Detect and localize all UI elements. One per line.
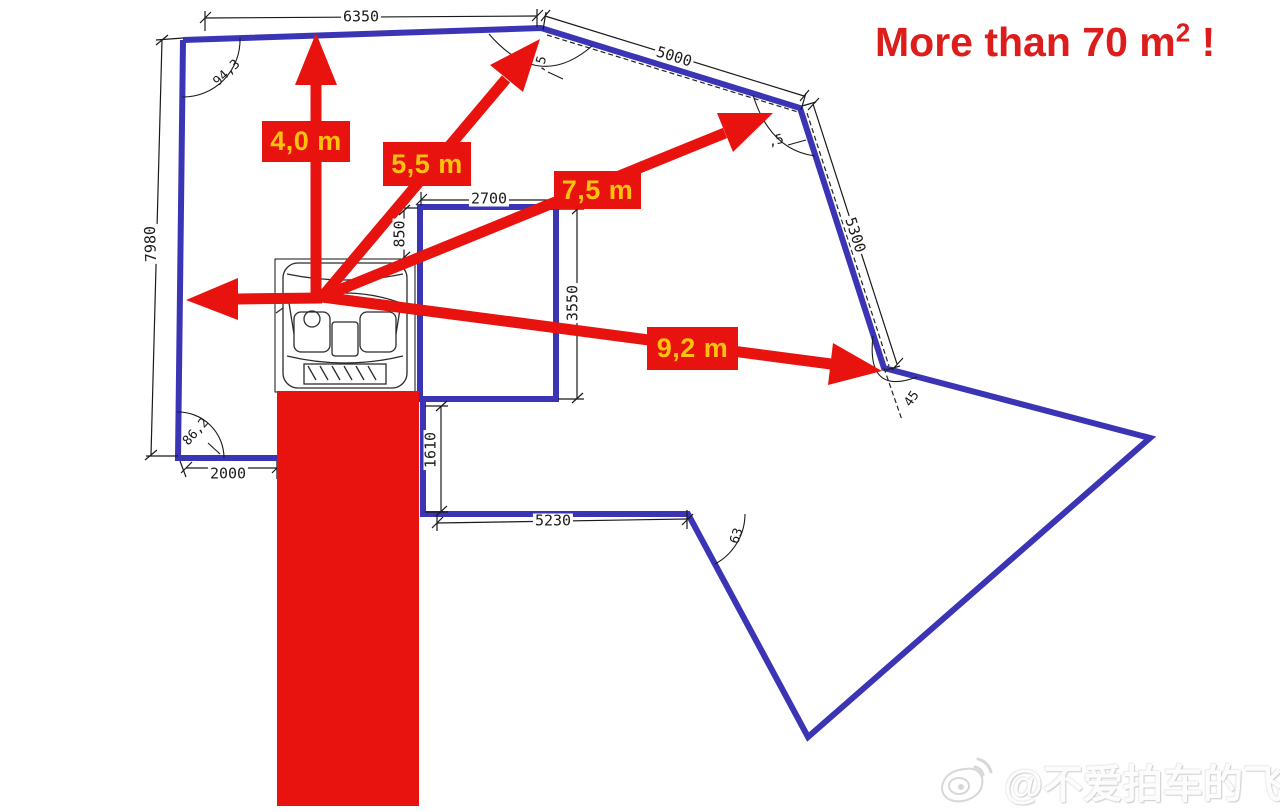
dimension-inner-rect-top: 2700 bbox=[469, 192, 509, 207]
distance-label-9-2m: 9,2 m bbox=[647, 327, 738, 370]
arrow-left-head bbox=[186, 278, 238, 320]
inner-building-rectangle bbox=[420, 207, 556, 399]
weibo-logo-icon bbox=[938, 755, 996, 807]
dimension-left-edge: 7980 bbox=[143, 224, 159, 265]
angle-label-upper-right-corner: ,5 bbox=[767, 133, 785, 150]
arrow-4m-head bbox=[295, 33, 337, 85]
page-title: More than 70 m2 ! bbox=[875, 20, 1215, 65]
distance-label-4-0m: 4,0 m bbox=[262, 121, 350, 162]
dimension-bottom-edge: 5230 bbox=[533, 514, 573, 529]
angle-label-top-corner: ,5 bbox=[533, 55, 550, 73]
distance-label-7-5m: 7,5 m bbox=[554, 171, 641, 209]
arrow-left-shaft bbox=[238, 298, 322, 299]
car-top-view-drawing bbox=[275, 259, 415, 392]
dimension-inner-rect-left: 850 bbox=[393, 218, 408, 249]
dimension-top-edge: 6350 bbox=[341, 10, 381, 25]
distance-label-5-5m: 5,5 m bbox=[383, 142, 471, 186]
dimension-inner-vertical: 1610 bbox=[424, 430, 439, 470]
arrow-7-5m-head bbox=[717, 113, 773, 152]
title-superscript: 2 bbox=[1176, 17, 1190, 47]
watermark: @不爱拍车的飞机 bbox=[938, 752, 1280, 810]
dimension-bottom-left-edge: 2000 bbox=[208, 467, 248, 482]
red-obstruction-block bbox=[277, 391, 419, 806]
title-text: More than 70 m bbox=[875, 19, 1176, 65]
title-suffix: ! bbox=[1190, 19, 1215, 65]
dimension-inner-rect-right: 3550 bbox=[566, 283, 581, 323]
measurement-arrows bbox=[186, 33, 882, 385]
boundary-left-path bbox=[178, 40, 278, 458]
floor-plan-diagram: 6350 5000 5300 7980 2000 2700 850 3550 1… bbox=[0, 0, 1280, 812]
watermark-handle: @不爱拍车的飞机 bbox=[1004, 752, 1280, 810]
cad-drawing bbox=[0, 0, 1280, 812]
